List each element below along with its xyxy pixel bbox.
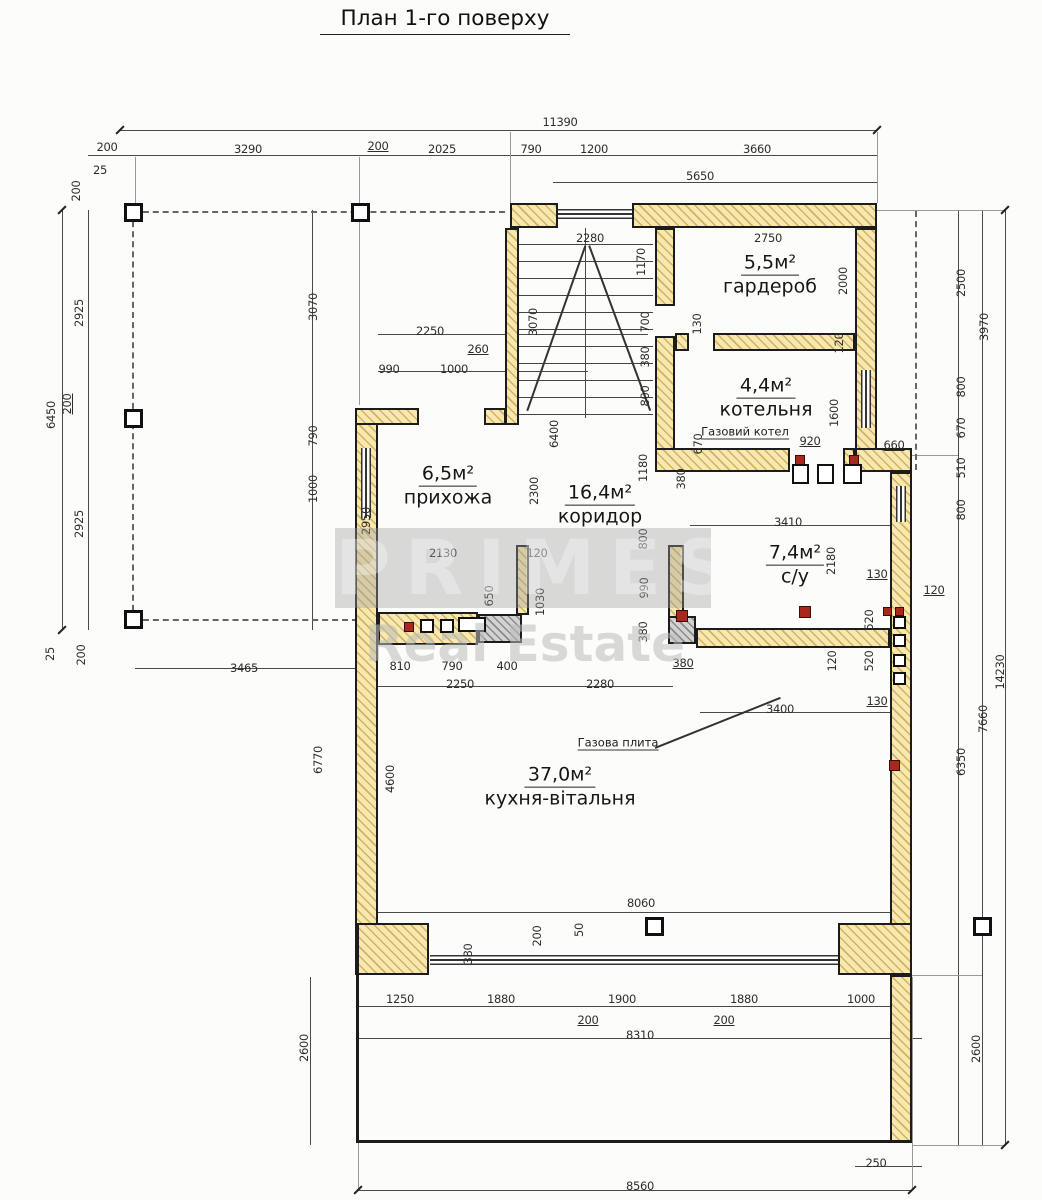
dim-label: 11390 [542,115,577,129]
column [351,203,370,222]
dim-label: 200 [367,139,388,153]
wall-segment [696,628,890,648]
dim-label: 25 [93,163,107,177]
dim-label: 120 [825,650,839,671]
dim-label: 130 [866,567,887,581]
dim-label: 380 [461,943,475,964]
dim-label: 1170 [634,248,648,276]
sink-fixture [440,619,454,633]
dim-label: 25 [43,647,57,661]
dim-label: 200 [69,180,83,201]
dim-label: 3465 [230,661,258,675]
dim-label: 1880 [730,992,758,1006]
dim-label: 200 [96,140,117,154]
dim-label: 520 [862,609,876,630]
witness-line [510,132,511,203]
wall-segment [484,408,506,425]
dim-label: 3400 [766,702,794,716]
dim-label: 200 [713,1013,734,1027]
dim-label: 1250 [386,992,414,1006]
dim-label: 380 [636,621,650,642]
room-label-boiler: 4,4м² котельня [719,377,812,422]
wall-segment [505,228,519,425]
dim-label: 400 [496,659,517,673]
dim-line [62,210,63,630]
wall-segment [655,228,675,306]
dim-label: 7660 [976,705,990,733]
fixture-marker [895,607,904,616]
dim-label: 6350 [954,748,968,776]
stove-leader-line [655,697,781,749]
terrace-outline [356,1140,912,1143]
fixture-marker [404,622,414,632]
dim-label: 3410 [774,515,802,529]
dim-label: 14230 [993,654,1007,689]
window [861,370,871,428]
column [124,203,143,222]
dashed-line [133,619,358,621]
dim-label: 130 [866,694,887,708]
dim-label: 790 [441,659,462,673]
dim-label: 3290 [234,142,262,156]
witness-line [912,977,913,1190]
dim-label: 4600 [383,765,397,793]
dim-label: 2600 [297,1034,311,1062]
fixture-marker [883,607,892,616]
window [896,486,906,522]
fixture-marker [799,606,811,618]
dim-label: 1900 [608,992,636,1006]
witness-line [877,210,1005,211]
dim-label: 670 [691,433,705,454]
room-label-wardrobe: 5,5м² гардероб [723,254,817,299]
stair-divider [585,228,586,418]
dim-label: 200 [60,393,74,414]
dim-line [553,182,877,183]
witness-line [912,1145,1005,1146]
dim-tick [57,625,66,634]
gas-meter [843,464,862,484]
dim-label: 3070 [526,308,540,336]
room-label-bathroom: 7,4м² с/у [766,544,824,589]
dim-label: 670 [954,417,968,438]
dim-line [378,912,890,913]
dim-label: 800 [954,376,968,397]
dim-label: 1180 [636,454,650,482]
dim-label: 120 [526,546,547,560]
dim-label: 6400 [547,420,561,448]
dim-label: 2950 [359,507,373,535]
dim-label: 6770 [311,746,325,774]
dim-label: 2250 [416,324,444,338]
dim-label: 260 [467,342,488,356]
fixture-marker [676,610,688,622]
dim-label: 990 [637,577,651,598]
dim-line [88,210,89,630]
dim-label: 3970 [977,313,991,341]
dim-label: 1200 [580,142,608,156]
room-label-hallway: 6,5м² прихожа [404,465,492,510]
wall-segment [838,923,912,975]
wall-segment [668,545,684,620]
dim-label: 790 [520,142,541,156]
wall-segment [675,333,689,351]
dim-label: 8060 [627,896,655,910]
dashed-line [133,211,505,213]
dim-label: 800 [636,528,650,549]
dim-label: 2925 [72,510,86,538]
dim-label: 380 [672,656,693,670]
boiler-annotation: Газовий котел [701,425,789,440]
dim-label: 6450 [44,401,58,429]
dim-label: 2280 [576,231,604,245]
wall-segment [890,975,912,1143]
wall-segment [357,923,429,975]
witness-line [359,157,360,405]
sink-fixture [420,619,434,633]
dim-label: 2025 [428,142,456,156]
dim-label: 130 [690,313,704,334]
column [124,610,143,629]
dim-label: 1000 [847,992,875,1006]
room-label-corridor: 16,4м² коридор [558,484,642,529]
riser-fixture [893,654,906,667]
dim-line [982,210,983,1145]
dim-line [958,210,959,1145]
dim-label: 700 [638,311,652,332]
dim-label: 250 [865,1156,886,1170]
dim-label: 50 [572,923,586,937]
dim-label: 810 [389,659,410,673]
terrace-outline [356,975,359,1143]
dim-label: 5650 [686,169,714,183]
dim-label: 1880 [487,992,515,1006]
dim-label: 2300 [527,477,541,505]
sink-fixture [458,617,486,632]
witness-line [877,132,878,203]
dim-label: 2500 [954,269,968,297]
dim-label: 8560 [626,1179,654,1193]
window [558,209,632,219]
dim-label: 1030 [533,588,547,616]
floor-plan-canvas: План 1-го поверху [0,0,1042,1200]
window-glazing [430,955,838,965]
riser-fixture [893,672,906,685]
dim-label: 3660 [743,142,771,156]
stove-annotation: Газова плита [578,736,659,751]
dim-label: 800 [638,385,652,406]
dim-label: 2130 [429,546,457,560]
page-title: План 1-го поверху [320,6,570,35]
dim-label: 200 [577,1013,598,1027]
dim-line [312,210,313,630]
dim-tick [907,1185,916,1194]
dim-label: 650 [482,585,496,606]
gas-meter [792,464,809,484]
riser-fixture [893,634,906,647]
dim-line [700,712,890,713]
wall-segment [632,203,877,228]
dim-label: 2250 [446,677,474,691]
fixture-marker [889,760,900,771]
dim-label: 790 [306,425,320,446]
dim-label: 800 [954,499,968,520]
dim-label: 200 [74,644,88,665]
dim-line [378,686,673,687]
dim-label: 2925 [72,299,86,327]
dim-tick [1000,1140,1009,1149]
dim-line [120,130,877,131]
riser-fixture [893,616,906,629]
wall-segment [510,203,558,228]
dim-label: 990 [378,362,399,376]
dim-label: 920 [799,434,820,448]
dim-label: 1600 [827,399,841,427]
dim-label: 120 [832,332,846,353]
dim-label: 510 [954,457,968,478]
dim-label: 660 [883,438,904,452]
dim-label: 2750 [754,231,782,245]
dashed-line [915,211,917,470]
gas-meter [817,464,834,484]
column [124,409,143,428]
column [645,917,664,936]
dim-label: 8310 [626,1028,654,1042]
dim-label: 380 [674,468,688,489]
dim-label: 1000 [440,362,468,376]
dim-line [358,1006,912,1007]
dim-label: 1000 [306,475,320,503]
room-label-kitchen: 37,0м² кухня-вітальня [484,766,635,811]
dim-label: 3070 [306,293,320,321]
dim-label: 2280 [586,677,614,691]
dim-label: 200 [530,925,544,946]
dim-label: 120 [923,583,944,597]
wall-segment [890,472,912,975]
column [973,917,992,936]
dim-label: 380 [638,346,652,367]
dim-label: 520 [862,650,876,671]
wall-segment [355,408,419,425]
dim-label: 2000 [836,267,850,295]
dim-label: 2180 [824,547,838,575]
dim-label: 2600 [969,1035,983,1063]
